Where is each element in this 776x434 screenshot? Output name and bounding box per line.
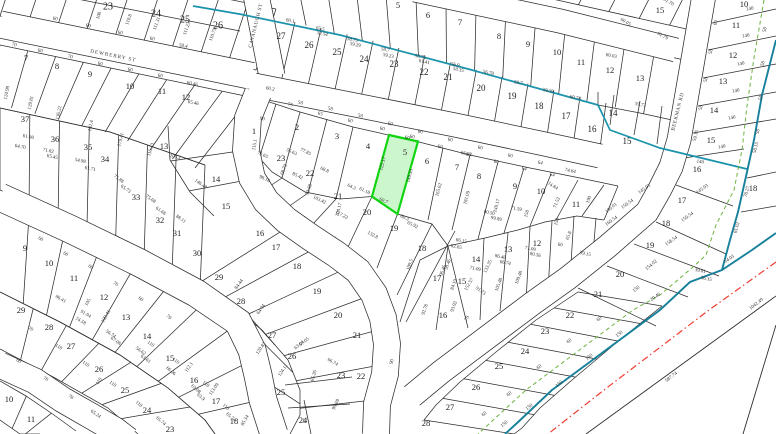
svg-text:12: 12 bbox=[533, 238, 542, 248]
svg-text:28: 28 bbox=[422, 418, 431, 428]
svg-text:12: 12 bbox=[100, 292, 109, 302]
svg-text:5: 5 bbox=[403, 147, 407, 157]
svg-text:19: 19 bbox=[313, 286, 322, 296]
svg-text:13: 13 bbox=[719, 76, 728, 86]
svg-text:10: 10 bbox=[5, 394, 14, 404]
svg-text:11: 11 bbox=[732, 20, 740, 30]
svg-text:28: 28 bbox=[237, 296, 246, 306]
svg-text:20: 20 bbox=[363, 207, 372, 217]
svg-text:16: 16 bbox=[190, 375, 199, 385]
svg-text:1: 1 bbox=[252, 126, 256, 136]
svg-text:3: 3 bbox=[335, 131, 339, 141]
svg-text:16: 16 bbox=[588, 124, 598, 134]
svg-text:26: 26 bbox=[472, 382, 481, 392]
svg-text:8: 8 bbox=[55, 61, 59, 71]
svg-text:13: 13 bbox=[504, 244, 513, 254]
svg-text:19: 19 bbox=[390, 223, 399, 233]
svg-text:30: 30 bbox=[193, 248, 202, 258]
svg-text:21: 21 bbox=[334, 191, 343, 201]
svg-text:17: 17 bbox=[678, 195, 687, 205]
svg-text:11: 11 bbox=[572, 199, 580, 209]
svg-text:9: 9 bbox=[88, 69, 92, 79]
svg-text:26: 26 bbox=[288, 351, 297, 361]
svg-text:21: 21 bbox=[594, 289, 603, 299]
svg-text:12: 12 bbox=[606, 65, 615, 75]
svg-text:26: 26 bbox=[305, 40, 315, 50]
svg-text:6: 6 bbox=[425, 156, 429, 166]
svg-text:15: 15 bbox=[656, 5, 665, 15]
svg-text:24: 24 bbox=[360, 54, 370, 64]
svg-text:25: 25 bbox=[121, 385, 130, 395]
svg-text:14: 14 bbox=[212, 174, 221, 184]
svg-text:23: 23 bbox=[390, 59, 400, 69]
svg-text:13: 13 bbox=[160, 141, 169, 151]
svg-text:27: 27 bbox=[268, 330, 277, 340]
svg-text:24: 24 bbox=[143, 405, 152, 415]
svg-text:23: 23 bbox=[337, 370, 346, 380]
svg-text:8: 8 bbox=[497, 31, 501, 41]
svg-text:28: 28 bbox=[45, 322, 54, 332]
svg-text:23: 23 bbox=[541, 326, 550, 336]
svg-text:17: 17 bbox=[272, 242, 281, 252]
svg-text:7: 7 bbox=[458, 17, 462, 27]
svg-text:24: 24 bbox=[521, 346, 530, 356]
svg-text:13: 13 bbox=[636, 73, 645, 83]
svg-text:23: 23 bbox=[166, 424, 175, 434]
svg-text:27: 27 bbox=[277, 31, 287, 41]
svg-text:25: 25 bbox=[495, 361, 504, 371]
svg-text:18: 18 bbox=[418, 243, 427, 253]
svg-text:14: 14 bbox=[472, 254, 481, 264]
svg-text:35: 35 bbox=[84, 142, 93, 152]
svg-text:14: 14 bbox=[710, 105, 719, 115]
svg-text:11: 11 bbox=[158, 86, 166, 96]
svg-text:6: 6 bbox=[426, 10, 430, 20]
svg-text:2: 2 bbox=[295, 122, 299, 132]
svg-text:15: 15 bbox=[222, 201, 231, 211]
svg-text:19: 19 bbox=[646, 240, 655, 250]
svg-text:5: 5 bbox=[396, 0, 400, 10]
svg-text:7: 7 bbox=[455, 162, 459, 172]
svg-text:16: 16 bbox=[439, 310, 448, 320]
svg-text:25: 25 bbox=[333, 47, 343, 57]
svg-text:15: 15 bbox=[707, 135, 716, 145]
svg-text:25: 25 bbox=[277, 387, 286, 397]
svg-text:11: 11 bbox=[70, 273, 78, 283]
svg-text:22: 22 bbox=[566, 310, 575, 320]
svg-text:27: 27 bbox=[446, 402, 455, 412]
svg-text:33: 33 bbox=[132, 192, 141, 202]
svg-text:9: 9 bbox=[513, 181, 517, 191]
svg-text:8: 8 bbox=[477, 171, 481, 181]
svg-text:11: 11 bbox=[27, 414, 35, 424]
svg-text:15: 15 bbox=[458, 276, 467, 286]
svg-text:20: 20 bbox=[616, 269, 625, 279]
svg-text:19: 19 bbox=[508, 91, 518, 101]
svg-text:16: 16 bbox=[693, 164, 702, 174]
svg-text:27: 27 bbox=[67, 341, 76, 351]
svg-text:23: 23 bbox=[103, 2, 113, 13]
svg-text:17: 17 bbox=[562, 111, 572, 121]
svg-text:18: 18 bbox=[662, 218, 671, 228]
svg-text:7: 7 bbox=[24, 53, 28, 63]
svg-text:29: 29 bbox=[215, 272, 224, 282]
svg-text:14: 14 bbox=[609, 108, 619, 118]
svg-text:22: 22 bbox=[306, 168, 315, 178]
svg-text:20: 20 bbox=[334, 310, 343, 320]
svg-text:23: 23 bbox=[277, 153, 286, 163]
svg-text:22: 22 bbox=[357, 371, 366, 381]
svg-text:31: 31 bbox=[173, 228, 182, 238]
svg-text:18: 18 bbox=[535, 101, 545, 111]
svg-text:26: 26 bbox=[95, 364, 104, 374]
svg-text:11: 11 bbox=[577, 57, 585, 67]
svg-text:20: 20 bbox=[477, 83, 487, 93]
svg-text:37: 37 bbox=[21, 114, 30, 124]
svg-text:10: 10 bbox=[45, 258, 54, 268]
svg-text:10: 10 bbox=[537, 186, 546, 196]
svg-text:34: 34 bbox=[101, 154, 110, 164]
svg-text:10: 10 bbox=[553, 47, 562, 57]
svg-text:36: 36 bbox=[51, 134, 60, 144]
svg-text:12: 12 bbox=[729, 50, 738, 60]
svg-text:13: 13 bbox=[122, 312, 131, 322]
svg-text:22: 22 bbox=[420, 67, 429, 77]
svg-text:14: 14 bbox=[143, 331, 152, 341]
svg-text:29: 29 bbox=[17, 305, 26, 315]
svg-text:21: 21 bbox=[444, 72, 453, 82]
svg-text:17: 17 bbox=[212, 396, 221, 406]
svg-text:18: 18 bbox=[293, 261, 302, 271]
svg-text:21: 21 bbox=[353, 330, 362, 340]
svg-text:10: 10 bbox=[126, 81, 135, 91]
svg-text:9: 9 bbox=[526, 39, 530, 49]
svg-text:9: 9 bbox=[23, 243, 27, 253]
svg-text:16: 16 bbox=[256, 228, 265, 238]
